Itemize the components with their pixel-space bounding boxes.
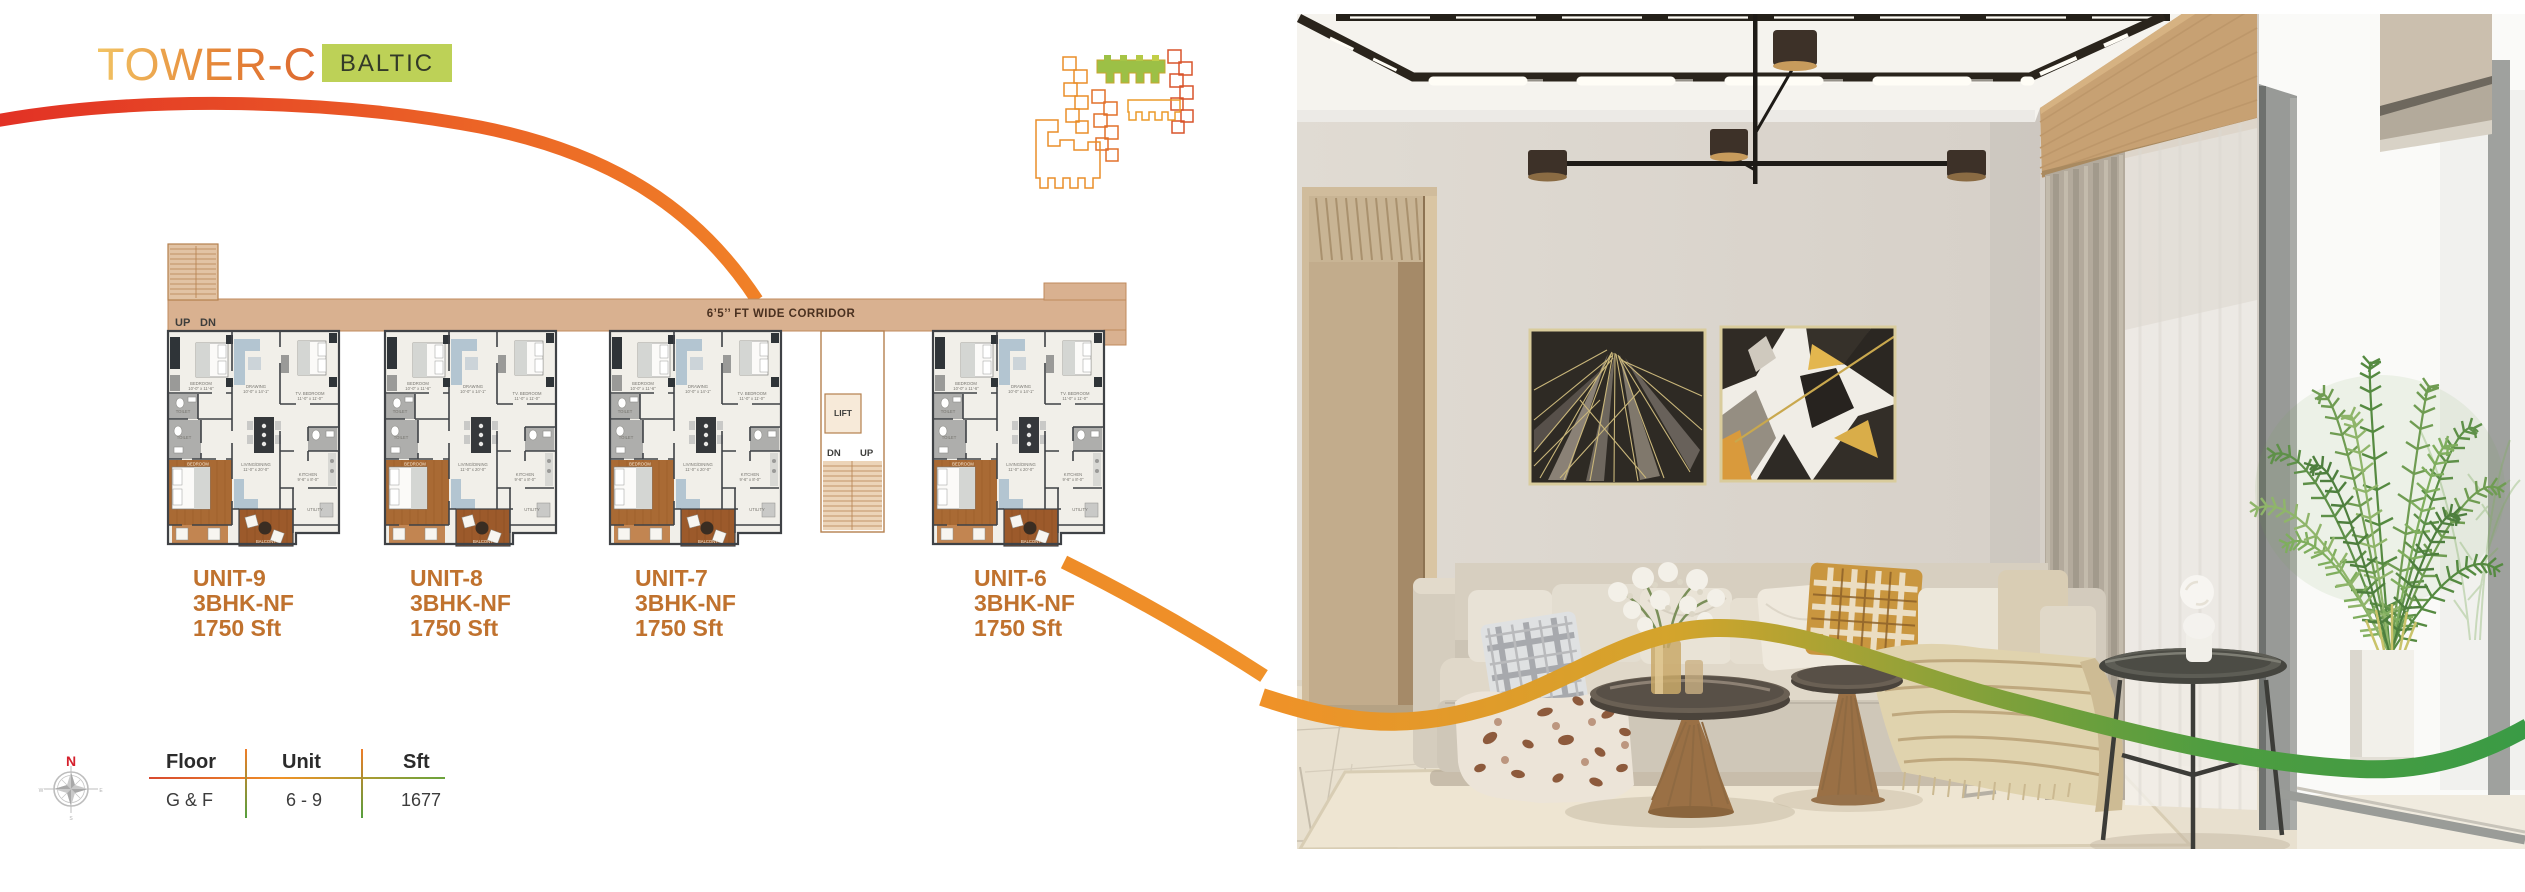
svg-text:Unit: Unit: [282, 751, 321, 773]
svg-text:DN: DN: [200, 317, 216, 329]
svg-text:TOWER-C: TOWER-C: [97, 39, 317, 90]
svg-text:6’5’’ FT WIDE CORRIDOR: 6’5’’ FT WIDE CORRIDOR: [707, 308, 856, 320]
svg-text:3BHK-NF: 3BHK-NF: [635, 590, 736, 616]
svg-text:3BHK-NF: 3BHK-NF: [974, 590, 1075, 616]
svg-text:1750 Sft: 1750 Sft: [193, 615, 282, 641]
svg-text:3BHK-NF: 3BHK-NF: [193, 590, 294, 616]
svg-text:LIFT: LIFT: [834, 408, 853, 418]
svg-text:G & F: G & F: [166, 790, 213, 810]
svg-text:DN: DN: [827, 448, 841, 459]
svg-text:UNIT-7: UNIT-7: [635, 565, 708, 591]
svg-text:UNIT-8: UNIT-8: [410, 565, 483, 591]
svg-text:UNIT-9: UNIT-9: [193, 565, 266, 591]
svg-text:Sft: Sft: [403, 751, 430, 773]
svg-text:Floor: Floor: [166, 751, 216, 773]
svg-text:1750 Sft: 1750 Sft: [635, 615, 724, 641]
svg-text:6 - 9: 6 - 9: [286, 790, 322, 810]
svg-text:W: W: [39, 788, 44, 794]
svg-text:1750 Sft: 1750 Sft: [974, 615, 1063, 641]
svg-text:1750 Sft: 1750 Sft: [410, 615, 499, 641]
svg-text:BALTIC: BALTIC: [340, 50, 434, 77]
svg-text:UP: UP: [175, 317, 190, 329]
svg-text:UNIT-6: UNIT-6: [974, 565, 1047, 591]
svg-text:1677: 1677: [401, 790, 441, 810]
svg-text:UP: UP: [860, 448, 874, 459]
svg-text:3BHK-NF: 3BHK-NF: [410, 590, 511, 616]
